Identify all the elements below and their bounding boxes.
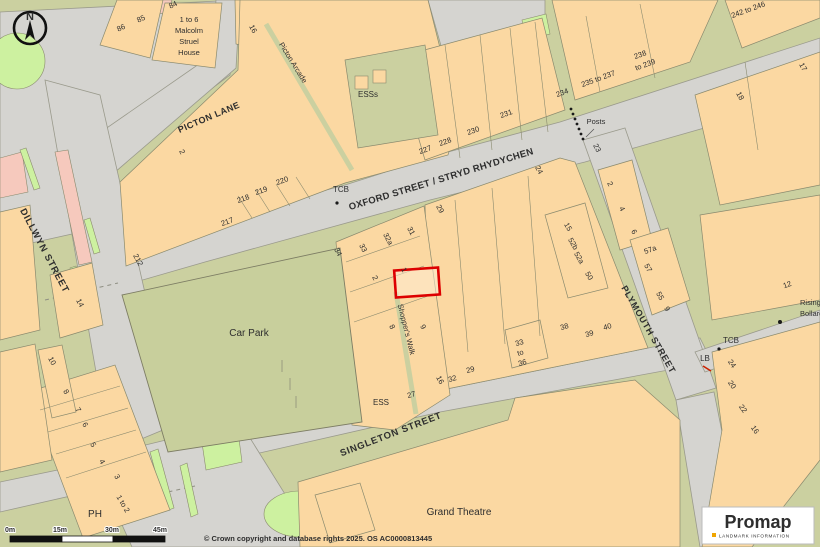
scale-tick-30: 30m xyxy=(105,527,119,534)
poi-label-ess: ESS xyxy=(373,398,389,407)
substation-hut-2 xyxy=(373,70,386,83)
promap-tagline-text: LANDMARK INFORMATION xyxy=(719,534,790,539)
area-label-car-park: Car Park xyxy=(229,328,269,339)
poi-label-tcb-north: TCB xyxy=(333,185,349,194)
tcb-south-dot xyxy=(717,347,720,350)
building-label-malcolm-line3: Struel xyxy=(179,37,199,46)
building-label-malcolm-line1: 1 to 6 xyxy=(180,15,199,24)
promap-map: PICTON LANEOXFORD STREET / STRYD RHYDYCH… xyxy=(0,0,820,547)
poi-label-esss: ESSs xyxy=(358,90,378,99)
promap-logo-dot-icon xyxy=(712,533,716,537)
scale-tick-0: 0m xyxy=(5,527,15,534)
map-canvas: PICTON LANEOXFORD STREET / STRYD RHYDYCH… xyxy=(0,0,820,547)
building-malcolm-struel-house xyxy=(152,3,222,68)
poi-label-lb: LB xyxy=(700,354,710,363)
building-label-malcolm-line2: Malcolm xyxy=(175,26,203,35)
copyright-text: © Crown copyright and database rights 20… xyxy=(204,534,432,543)
scale-tick-45: 45m xyxy=(153,527,167,534)
bollard-dot xyxy=(778,320,782,324)
area-label-grand-theatre: Grand Theatre xyxy=(427,507,492,518)
promap-logo: Promap LANDMARK INFORMATION xyxy=(702,507,814,544)
poi-label-rising: Rising xyxy=(800,298,820,307)
poi-label-ph: PH xyxy=(88,509,102,520)
scale-tick-15: 15m xyxy=(53,527,67,534)
tcb-north-dot xyxy=(335,201,338,204)
promap-brand-text: Promap xyxy=(724,512,791,532)
poi-label-bollards: Bollards xyxy=(800,309,820,318)
poi-label-posts: Posts xyxy=(587,117,606,126)
building-label-malcolm-line4: House xyxy=(178,48,200,57)
poi-label-tcb-south: TCB xyxy=(723,336,739,345)
substation-hut-1 xyxy=(355,76,368,89)
